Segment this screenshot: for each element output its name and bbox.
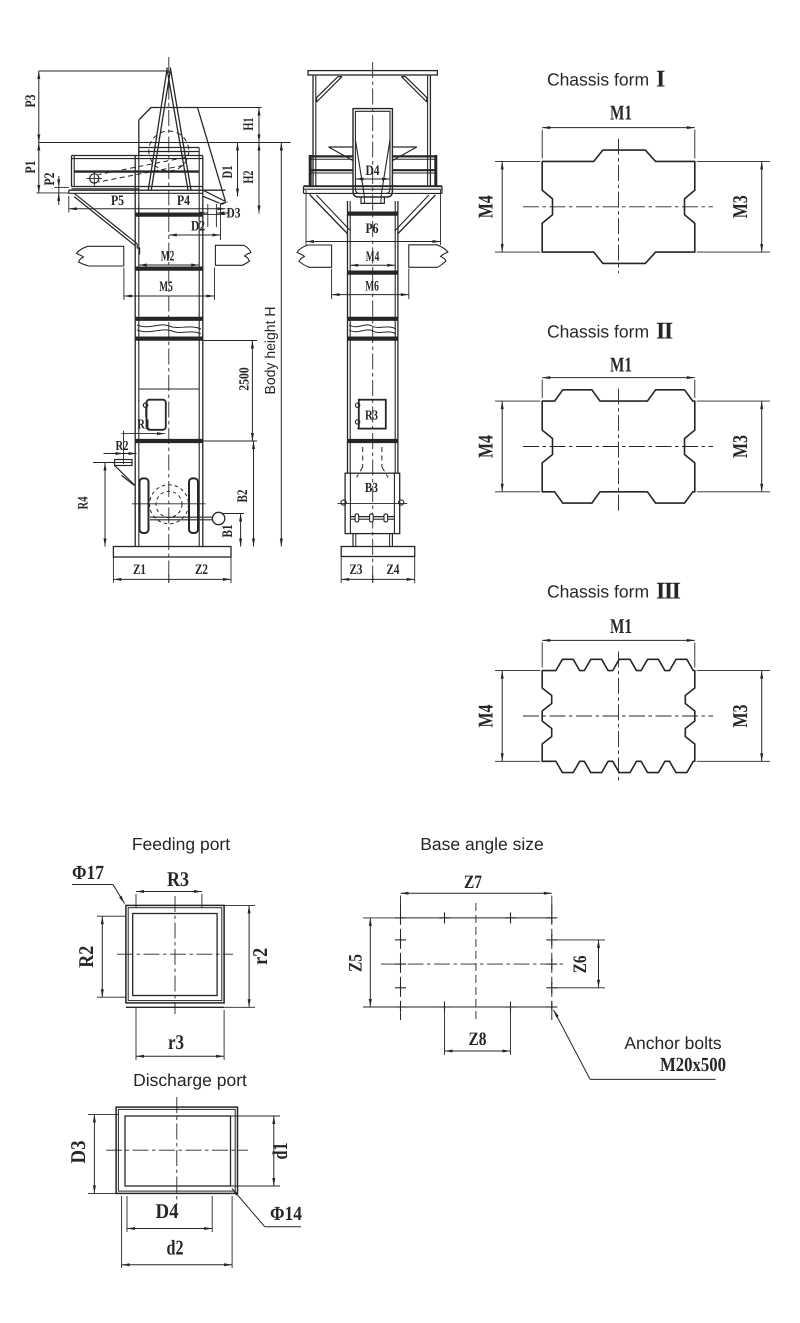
svg-text:D3: D3 <box>227 206 241 222</box>
svg-text:H2: H2 <box>241 171 257 184</box>
svg-text:Z6: Z6 <box>570 955 591 973</box>
svg-text:Chassis form: Chassis form <box>547 70 649 90</box>
svg-text:Discharge port: Discharge port <box>133 1070 247 1090</box>
svg-text:Base angle size: Base angle size <box>420 834 544 854</box>
svg-text:Anchor bolts: Anchor bolts <box>624 1033 722 1053</box>
svg-text:P2: P2 <box>42 173 58 186</box>
svg-text:P5: P5 <box>111 193 124 209</box>
svg-text:Feeding port: Feeding port <box>132 834 230 854</box>
svg-text:Z5: Z5 <box>346 954 367 972</box>
svg-text:Chassis form: Chassis form <box>547 582 649 602</box>
svg-text:D2: D2 <box>191 219 205 235</box>
svg-text:P1: P1 <box>23 161 39 174</box>
svg-text:r3: r3 <box>168 1030 184 1054</box>
svg-text:R2: R2 <box>116 438 129 453</box>
svg-text:B2: B2 <box>235 490 251 503</box>
svg-text:Z7: Z7 <box>464 872 482 893</box>
svg-text:P4: P4 <box>177 193 191 209</box>
svg-text:2500: 2500 <box>238 367 253 391</box>
svg-text:r2: r2 <box>248 948 272 965</box>
svg-text:D4: D4 <box>156 1199 179 1223</box>
svg-text:Z1: Z1 <box>133 562 146 578</box>
svg-text:Body height H: Body height H <box>263 307 279 395</box>
svg-text:I: I <box>656 67 665 93</box>
svg-text:M6: M6 <box>365 279 379 295</box>
svg-text:Z2: Z2 <box>195 562 208 578</box>
svg-text:M20x500: M20x500 <box>660 1054 726 1076</box>
svg-text:M3: M3 <box>728 705 752 728</box>
svg-text:P6: P6 <box>366 221 379 237</box>
svg-text:R3: R3 <box>167 867 189 891</box>
svg-text:B3: B3 <box>365 480 378 495</box>
svg-text:M1: M1 <box>610 353 632 377</box>
svg-text:M4: M4 <box>366 249 380 265</box>
svg-text:Z3: Z3 <box>350 562 363 578</box>
svg-text:Φ14: Φ14 <box>270 1203 302 1225</box>
svg-text:M4: M4 <box>474 704 498 727</box>
svg-text:M5: M5 <box>159 279 173 295</box>
svg-text:M4: M4 <box>474 195 498 218</box>
svg-text:R1: R1 <box>137 417 150 432</box>
svg-text:P3: P3 <box>23 95 39 108</box>
svg-text:B1: B1 <box>220 525 236 538</box>
svg-text:D1: D1 <box>220 166 236 179</box>
svg-text:D3: D3 <box>66 1141 90 1164</box>
svg-text:Z4: Z4 <box>387 562 401 578</box>
svg-text:M3: M3 <box>728 195 752 218</box>
svg-text:Z8: Z8 <box>469 1029 487 1050</box>
svg-text:M3: M3 <box>728 435 752 458</box>
svg-text:Φ17: Φ17 <box>72 862 104 884</box>
svg-text:M1: M1 <box>610 614 632 638</box>
svg-text:II: II <box>656 319 673 345</box>
svg-text:Chassis form: Chassis form <box>547 322 649 342</box>
svg-text:M1: M1 <box>610 101 632 125</box>
svg-text:D4: D4 <box>366 163 381 179</box>
svg-text:M2: M2 <box>161 249 175 265</box>
svg-text:H1: H1 <box>241 118 257 131</box>
svg-text:d2: d2 <box>167 1236 184 1260</box>
svg-text:d1: d1 <box>268 1143 292 1160</box>
svg-text:M4: M4 <box>474 435 498 458</box>
svg-text:R3: R3 <box>365 408 378 423</box>
svg-text:R4: R4 <box>75 496 91 510</box>
svg-text:R2: R2 <box>74 946 98 968</box>
svg-text:III: III <box>656 579 681 605</box>
